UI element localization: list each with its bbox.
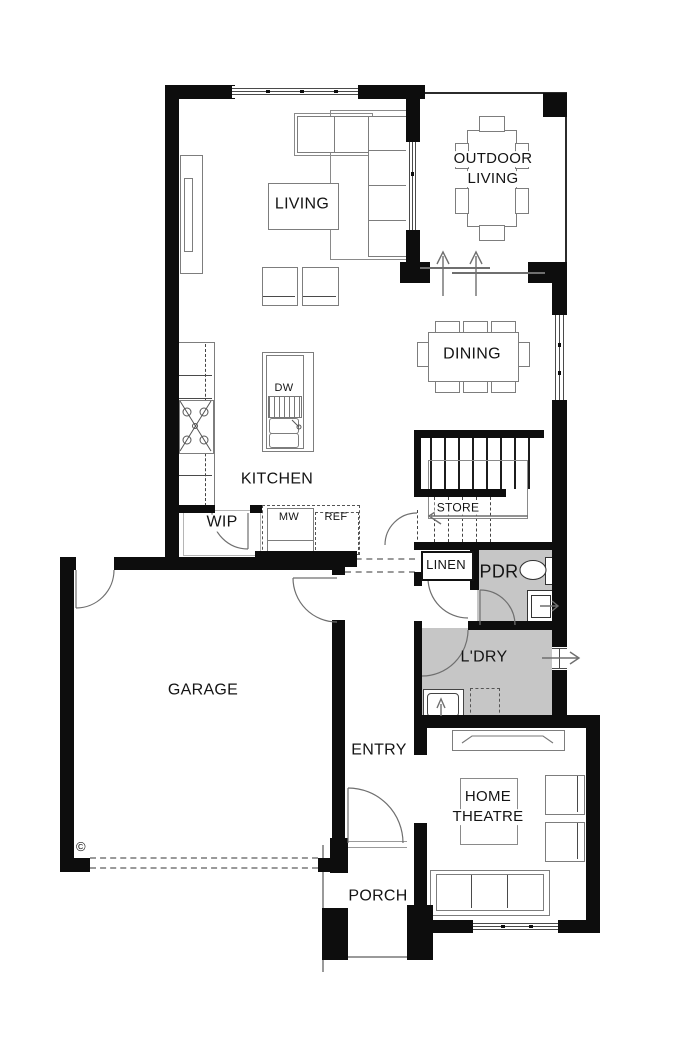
copyright-mark: © bbox=[76, 840, 86, 854]
linen-door-arc bbox=[428, 578, 468, 618]
room-label-outdoor-living-1: OUTDOOR bbox=[452, 151, 535, 167]
outdoor-chair-left bbox=[455, 188, 469, 214]
wip-door-jamb bbox=[179, 505, 215, 513]
garage-door-panel bbox=[90, 867, 318, 869]
window-line bbox=[232, 94, 358, 95]
front-door-threshold bbox=[348, 841, 407, 842]
window-line bbox=[559, 315, 560, 400]
sofa-seat bbox=[368, 220, 409, 257]
room-label-living: LIVING bbox=[273, 197, 331, 214]
wall bbox=[414, 823, 427, 908]
window-line bbox=[473, 929, 558, 930]
theatre-sofa-seats bbox=[436, 874, 544, 911]
theatre-tv-unit bbox=[452, 730, 565, 751]
garage-left-wall bbox=[60, 557, 74, 872]
front-door-threshold bbox=[348, 847, 407, 848]
garage-door-panel bbox=[90, 857, 318, 859]
wall bbox=[60, 557, 76, 570]
window-line bbox=[555, 315, 556, 400]
room-label-laundry: L'DRY bbox=[461, 650, 508, 667]
wall bbox=[427, 920, 473, 933]
outdoor-column bbox=[543, 93, 567, 117]
armchair-line bbox=[577, 776, 578, 812]
room-label-entry: ENTRY bbox=[351, 743, 406, 760]
stairs-mid-wall bbox=[414, 489, 506, 497]
wall bbox=[468, 621, 554, 630]
laundry-trough-bowl bbox=[427, 693, 459, 717]
room-label-pdr: PDR bbox=[480, 563, 519, 582]
stacker-open-arrow bbox=[470, 252, 482, 296]
living-tv-panel bbox=[184, 178, 193, 252]
wip-door-jamb bbox=[250, 505, 262, 513]
wall bbox=[406, 97, 420, 142]
porch-bottom-edge bbox=[348, 956, 408, 958]
ottoman-line bbox=[303, 296, 336, 297]
window-tick bbox=[411, 172, 414, 176]
store-door-jamb bbox=[417, 510, 418, 545]
laundry-exit-door bbox=[552, 647, 567, 670]
garage-entry-door-arc bbox=[293, 578, 337, 622]
window-line bbox=[415, 142, 416, 230]
bench-line bbox=[179, 398, 212, 399]
porch-pillar bbox=[407, 905, 433, 960]
ottoman bbox=[302, 267, 339, 306]
dining-window bbox=[552, 315, 567, 400]
label-microwave: MW bbox=[279, 512, 299, 524]
bench-line bbox=[179, 475, 212, 476]
stair-tread bbox=[528, 438, 530, 489]
outdoor-chair-right bbox=[515, 188, 529, 214]
hall-bulkhead-dash bbox=[345, 571, 415, 573]
store-door-arc bbox=[385, 513, 417, 545]
room-label-garage: GARAGE bbox=[168, 683, 238, 700]
window-line bbox=[412, 142, 413, 230]
sofa-seat bbox=[368, 185, 409, 222]
theatre-armchair bbox=[545, 822, 585, 862]
wall bbox=[165, 85, 179, 557]
wall bbox=[60, 858, 90, 872]
garage-right-wall bbox=[332, 620, 345, 872]
sofa-seat bbox=[368, 150, 409, 187]
jamb-line bbox=[552, 668, 567, 669]
sofa-seat bbox=[368, 116, 409, 152]
wall bbox=[414, 430, 421, 489]
ottoman bbox=[262, 267, 298, 306]
kitchen-hall-wall bbox=[255, 551, 357, 567]
wall bbox=[558, 920, 600, 933]
cooktop bbox=[179, 400, 214, 454]
room-label-store: STORE bbox=[435, 502, 482, 515]
stairs-bottom-wall bbox=[414, 542, 556, 550]
window-line bbox=[232, 88, 358, 89]
ottoman-line bbox=[263, 296, 295, 297]
window-tick bbox=[501, 925, 505, 928]
bench-line bbox=[179, 375, 212, 376]
room-label-outdoor-living-2: LIVING bbox=[466, 171, 521, 187]
outdoor-chair-top bbox=[479, 116, 505, 132]
wall bbox=[400, 262, 430, 283]
window-tick bbox=[266, 90, 270, 93]
stacker-door-panel bbox=[420, 267, 490, 269]
dishwasher-hatch bbox=[268, 396, 302, 418]
window-line bbox=[563, 315, 564, 400]
stacker-door-panel bbox=[452, 272, 545, 274]
wall bbox=[552, 548, 567, 647]
laundry-appliance-space bbox=[470, 688, 500, 718]
sofa-seat bbox=[334, 116, 372, 153]
window-line bbox=[232, 91, 358, 92]
sofa-divider bbox=[471, 875, 472, 908]
room-label-wip: WIP bbox=[204, 515, 239, 532]
sofa-seat bbox=[297, 116, 335, 153]
outdoor-living-right-edge bbox=[565, 92, 567, 266]
door-line bbox=[559, 648, 560, 668]
sink-bowl bbox=[269, 418, 299, 434]
stairs-top-wall bbox=[414, 430, 544, 438]
room-label-linen: LINEN bbox=[426, 558, 466, 572]
room-label-dining: DINING bbox=[441, 347, 503, 364]
room-label-home-theatre-1: HOME bbox=[463, 789, 513, 805]
window-tick bbox=[334, 90, 338, 93]
room-label-kitchen: KITCHEN bbox=[241, 472, 313, 489]
sink-bowl bbox=[269, 433, 299, 448]
window-tick bbox=[558, 343, 561, 347]
wall bbox=[318, 858, 345, 872]
wall bbox=[414, 728, 427, 755]
front-door-arc bbox=[348, 788, 403, 843]
wall bbox=[552, 266, 567, 315]
room-label-home-theatre-2: THEATRE bbox=[451, 809, 526, 825]
theatre-top-wall bbox=[414, 715, 600, 728]
living-outdoor-slider bbox=[406, 142, 420, 230]
sofa-divider bbox=[507, 875, 508, 908]
room-label-porch: PORCH bbox=[348, 889, 407, 906]
window-line bbox=[409, 142, 410, 230]
window-line bbox=[473, 926, 558, 927]
wall bbox=[414, 621, 422, 721]
theatre-right-wall bbox=[586, 728, 600, 933]
outdoor-chair-bottom bbox=[479, 225, 505, 241]
garage-wip-door-arc bbox=[76, 570, 114, 608]
living-window bbox=[232, 86, 358, 98]
armchair-line bbox=[577, 823, 578, 859]
label-dishwasher: DW bbox=[273, 383, 296, 395]
floor-plan: LIVING OUTDOOR LIVING DINING KITCHEN WIP… bbox=[0, 0, 700, 1045]
wall bbox=[552, 400, 567, 548]
theatre-window bbox=[473, 920, 558, 933]
pdr-basin bbox=[531, 595, 551, 618]
window-tick bbox=[300, 90, 304, 93]
window-tick bbox=[558, 371, 561, 375]
window-tick bbox=[529, 925, 533, 928]
porch-pillar bbox=[322, 908, 348, 960]
window-line bbox=[473, 923, 558, 924]
stacker-open-arrow bbox=[437, 252, 449, 296]
wall bbox=[406, 230, 420, 266]
theatre-armchair bbox=[545, 775, 585, 815]
label-fridge: REF bbox=[325, 512, 348, 524]
